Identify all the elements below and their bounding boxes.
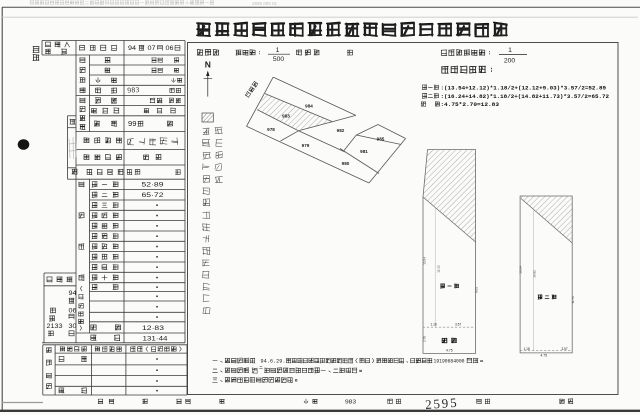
svg-text:983: 983 [127,85,140,95]
svg-text:200: 200 [504,58,516,65]
svg-text:94.6.29.: 94.6.29. [261,358,286,365]
svg-text:06: 06 [166,45,174,52]
svg-text:9.03: 9.03 [475,287,479,293]
svg-text:978: 978 [267,127,275,132]
svg-text:2595 000 01: 2595 000 01 [252,1,278,6]
svg-text:4.75: 4.75 [540,353,547,357]
svg-text:52·89: 52·89 [142,182,164,189]
svg-text:983: 983 [345,400,356,406]
svg-text:14.82: 14.82 [533,270,537,278]
svg-text:1.18: 1.18 [431,322,437,326]
svg-text:131·44: 131·44 [143,335,168,342]
svg-text:2.70: 2.70 [423,336,427,342]
svg-text:1: 1 [276,47,280,54]
svg-text:4.75: 4.75 [446,349,453,353]
svg-text:1.18: 1.18 [524,347,530,351]
svg-text:(16.24+14.82)*1.18/2+(14.82+11: (16.24+14.82)*1.18/2+(14.82+11.73)*3.57/… [444,93,609,100]
svg-text:979: 979 [302,143,310,148]
svg-text:984: 984 [305,104,313,109]
svg-text:4.75*2.70=12.83: 4.75*2.70=12.83 [444,101,500,108]
svg-text:N: N [205,60,211,70]
svg-text:19190684000: 19190684000 [434,358,466,365]
svg-text:1: 1 [508,47,512,54]
svg-text:980: 980 [342,161,350,166]
svg-text:2133: 2133 [47,323,63,330]
svg-text:2595: 2595 [425,395,459,412]
svg-text:65·72: 65·72 [142,192,164,199]
svg-text:99: 99 [128,119,137,128]
svg-text:985: 985 [377,136,385,141]
svg-text:12.12: 12.12 [436,265,440,273]
svg-text:981: 981 [360,149,368,154]
svg-text:94: 94 [69,290,77,297]
svg-text:983: 983 [282,113,290,118]
svg-text:13.54: 13.54 [422,257,426,265]
svg-text:3.57: 3.57 [562,347,568,351]
svg-text:94: 94 [128,45,136,52]
svg-text:3.57: 3.57 [455,322,461,326]
svg-text:06: 06 [69,307,77,314]
svg-text:16.24: 16.24 [519,266,523,274]
svg-text:982: 982 [337,128,345,133]
svg-text:500: 500 [273,56,285,63]
svg-text:30: 30 [69,323,77,330]
svg-text:12·83: 12·83 [142,325,164,332]
svg-text:11.73: 11.73 [571,296,575,304]
svg-text:(13.54+12.12)*1.18/2+(12.12+9.: (13.54+12.12)*1.18/2+(12.12+9.03)*3.57/2… [444,84,606,91]
svg-text:07: 07 [148,45,156,52]
